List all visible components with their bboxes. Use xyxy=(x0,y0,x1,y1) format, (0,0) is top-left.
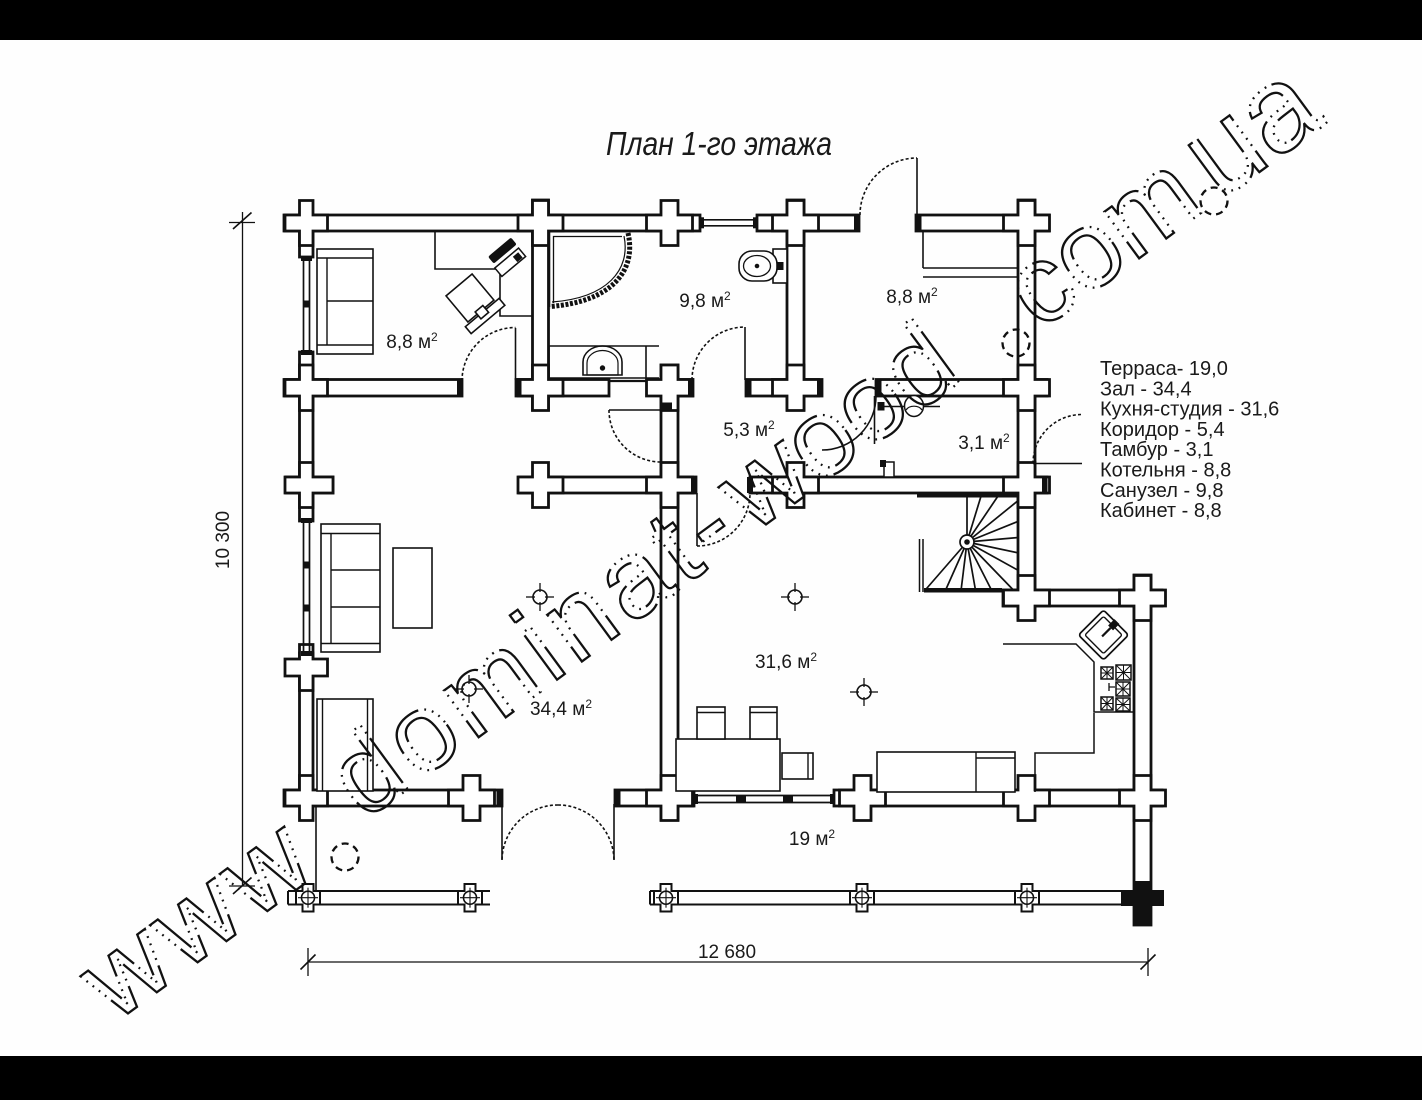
svg-text:Зал - 34,4: Зал - 34,4 xyxy=(1100,378,1192,400)
svg-text:31,6 м2: 31,6 м2 xyxy=(755,650,817,673)
svg-text:Котельня - 8,8: Котельня - 8,8 xyxy=(1100,460,1231,482)
svg-text:3,1 м2: 3,1 м2 xyxy=(958,431,1010,454)
svg-text:12 680: 12 680 xyxy=(698,942,756,963)
svg-text:Кабинет - 8,8: Кабинет - 8,8 xyxy=(1100,500,1222,522)
svg-text:8,8 м2: 8,8 м2 xyxy=(886,285,938,308)
svg-text:Санузел - 9,8: Санузел - 9,8 xyxy=(1100,480,1224,502)
svg-text:9,8 м2: 9,8 м2 xyxy=(679,289,731,312)
svg-text:Кухня-студия - 31,6: Кухня-студия - 31,6 xyxy=(1100,399,1279,421)
svg-text:План 1-го этажа: План 1-го этажа xyxy=(606,125,832,162)
svg-text:Тамбур - 3,1: Тамбур - 3,1 xyxy=(1100,439,1213,461)
svg-text:Коридор - 5,4: Коридор - 5,4 xyxy=(1100,419,1225,441)
svg-text:8,8 м2: 8,8 м2 xyxy=(386,330,438,353)
svg-text:Терраса- 19,0: Терраса- 19,0 xyxy=(1100,358,1228,380)
svg-text:10 300: 10 300 xyxy=(213,511,234,569)
